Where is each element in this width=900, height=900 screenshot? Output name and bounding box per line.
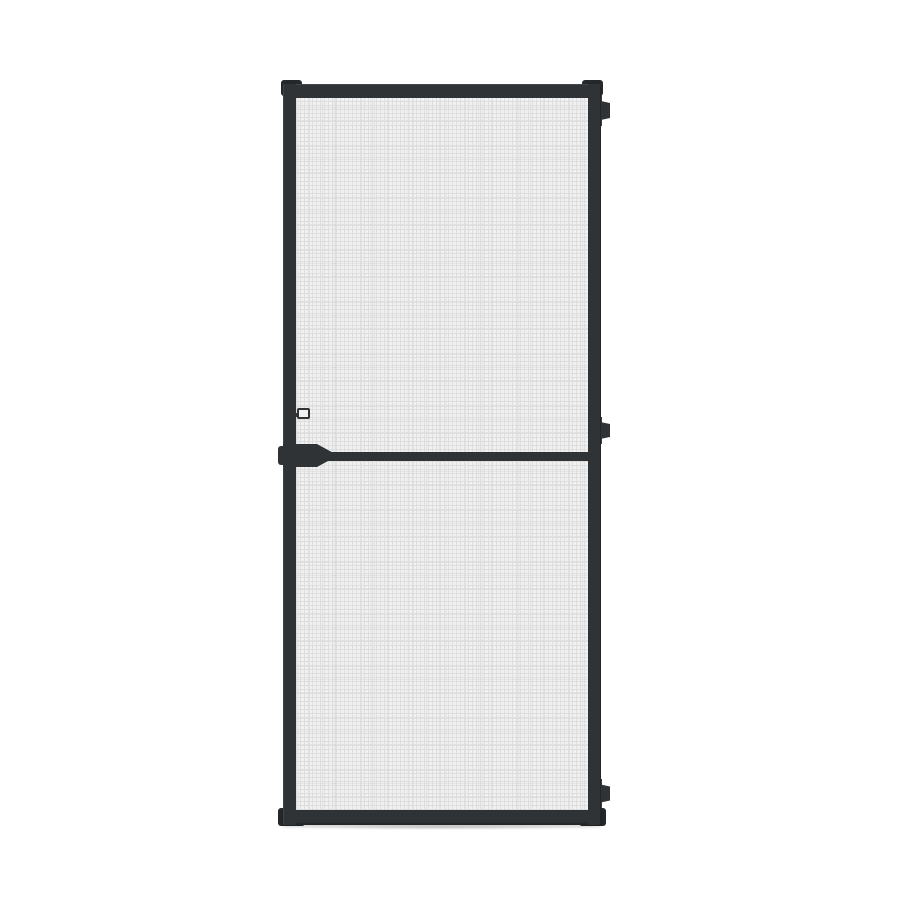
product-photo-canvas: [0, 0, 900, 900]
right-stile: [588, 84, 601, 825]
bottom-rail: [283, 810, 601, 825]
screen-door: [283, 84, 601, 825]
middle-crossbar: [295, 452, 589, 461]
handle-boss: [278, 446, 286, 465]
top-rail: [283, 84, 601, 98]
latch-keeper: [297, 408, 310, 419]
